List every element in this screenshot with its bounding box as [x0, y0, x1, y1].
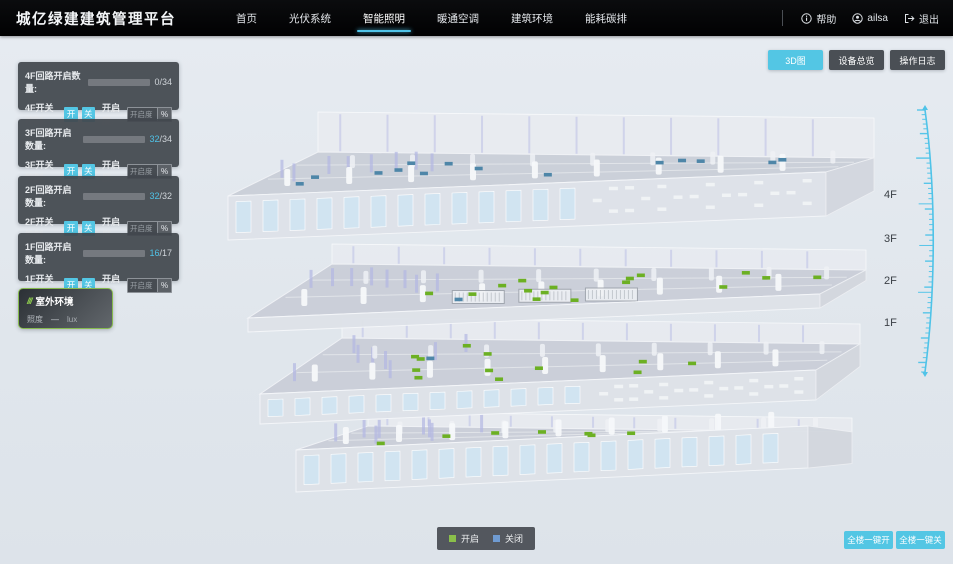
- dim-input-1f[interactable]: [127, 278, 158, 293]
- outdoor-env-title: 室外环境: [36, 294, 74, 308]
- legend-off-label: 关闭: [505, 532, 523, 545]
- user-icon: [852, 13, 863, 24]
- circuit-progress-bar: [88, 79, 150, 86]
- view-switcher: 3D图 设备总览 操作日志: [768, 50, 945, 70]
- circuit-count-label: 3F回路开启数量:: [25, 126, 78, 152]
- help-button[interactable]: 帮助: [801, 11, 836, 26]
- user-name: ailsa: [867, 13, 888, 24]
- nav-building-env[interactable]: 建筑环境: [509, 0, 555, 37]
- nav-home[interactable]: 首页: [234, 0, 259, 37]
- header-divider: [782, 10, 783, 26]
- outdoor-env-icon: ///: [27, 296, 32, 306]
- view-3d-button[interactable]: 3D图: [768, 50, 823, 70]
- legend-on-swatch: [449, 535, 456, 542]
- all-on-button[interactable]: 全楼一键开: [844, 531, 893, 549]
- dim-percent-button-1f[interactable]: %: [158, 278, 172, 293]
- device-overview-button[interactable]: 设备总览: [829, 50, 884, 70]
- floor-panel-2f: 2F回路开启数量: 32/32 2F开关控制: 开 关 开启度: %: [18, 176, 179, 224]
- nav-energy-carbon[interactable]: 能耗碳排: [583, 0, 629, 37]
- floor-label-3f: 3F: [884, 233, 897, 245]
- bulk-controls: 全楼一键开 全楼一键关: [844, 531, 945, 549]
- circuit-progress-bar: [83, 193, 145, 200]
- legend-on-label: 开启: [461, 532, 479, 545]
- logout-button[interactable]: 退出: [904, 11, 939, 26]
- circuit-count-label: 4F回路开启数量:: [25, 69, 83, 95]
- nav-hvac[interactable]: 暖通空调: [435, 0, 481, 37]
- floor-label-2f: 2F: [884, 275, 897, 287]
- all-off-button[interactable]: 全楼一键关: [896, 531, 945, 549]
- app-title: 城亿绿建建筑管理平台: [16, 8, 176, 29]
- circuit-progress-bar: [83, 136, 145, 143]
- nav-pv-system[interactable]: 光伏系统: [287, 0, 333, 37]
- illuminance-value: —: [51, 315, 59, 324]
- floor-label-4f: 4F: [884, 189, 897, 201]
- user-menu[interactable]: ailsa: [852, 13, 888, 24]
- circuit-count-label: 1F回路开启数量:: [25, 240, 78, 266]
- nav-smart-lighting[interactable]: 智能照明: [361, 0, 407, 37]
- header-right: 帮助 ailsa 退出: [782, 10, 939, 26]
- illuminance-unit: lux: [67, 315, 77, 324]
- info-icon: [801, 13, 812, 24]
- main-nav: 首页 光伏系统 智能照明 暖通空调 建筑环境 能耗碳排: [234, 0, 629, 37]
- floor-label-1f: 1F: [884, 317, 897, 329]
- top-header: 城亿绿建建筑管理平台 首页 光伏系统 智能照明 暖通空调 建筑环境 能耗碳排 帮…: [0, 0, 953, 36]
- illuminance-label: 照度: [27, 314, 43, 325]
- operation-log-button[interactable]: 操作日志: [890, 50, 945, 70]
- floor-panel-4f: 4F回路开启数量: 0/34 4F开关控制: 开 关 开启度: %: [18, 62, 179, 110]
- logout-icon: [904, 13, 915, 24]
- circuit-count-label: 2F回路开启数量:: [25, 183, 78, 209]
- legend-off-swatch: [493, 535, 500, 542]
- floor-panel-1f: 1F回路开启数量: 16/17 1F开关控制: 开 关 开启度: %: [18, 233, 179, 281]
- outdoor-env-panel: /// 室外环境 照度 — lux: [18, 288, 113, 329]
- floor-panel-3f: 3F回路开启数量: 32/34 3F开关控制: 开 关 开启度: %: [18, 119, 179, 167]
- light-status-legend: 开启 关闭: [437, 527, 535, 550]
- circuit-progress-bar: [83, 250, 145, 257]
